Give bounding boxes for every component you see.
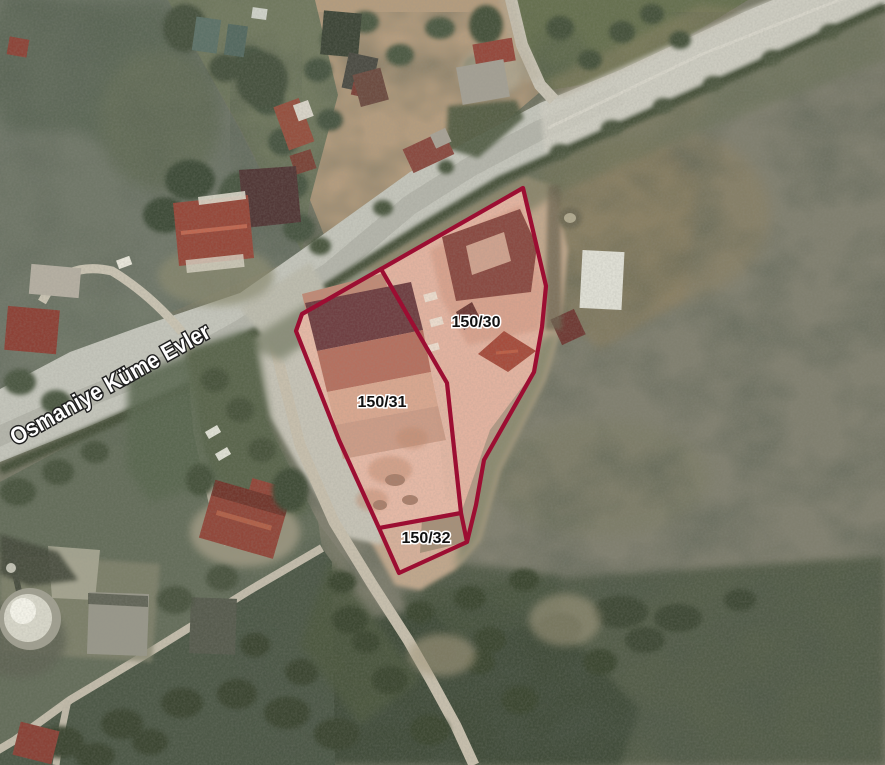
svg-text:150/30: 150/30 bbox=[452, 314, 501, 331]
svg-text:150/31: 150/31 bbox=[358, 394, 407, 411]
svg-text:150/32: 150/32 bbox=[402, 530, 451, 547]
